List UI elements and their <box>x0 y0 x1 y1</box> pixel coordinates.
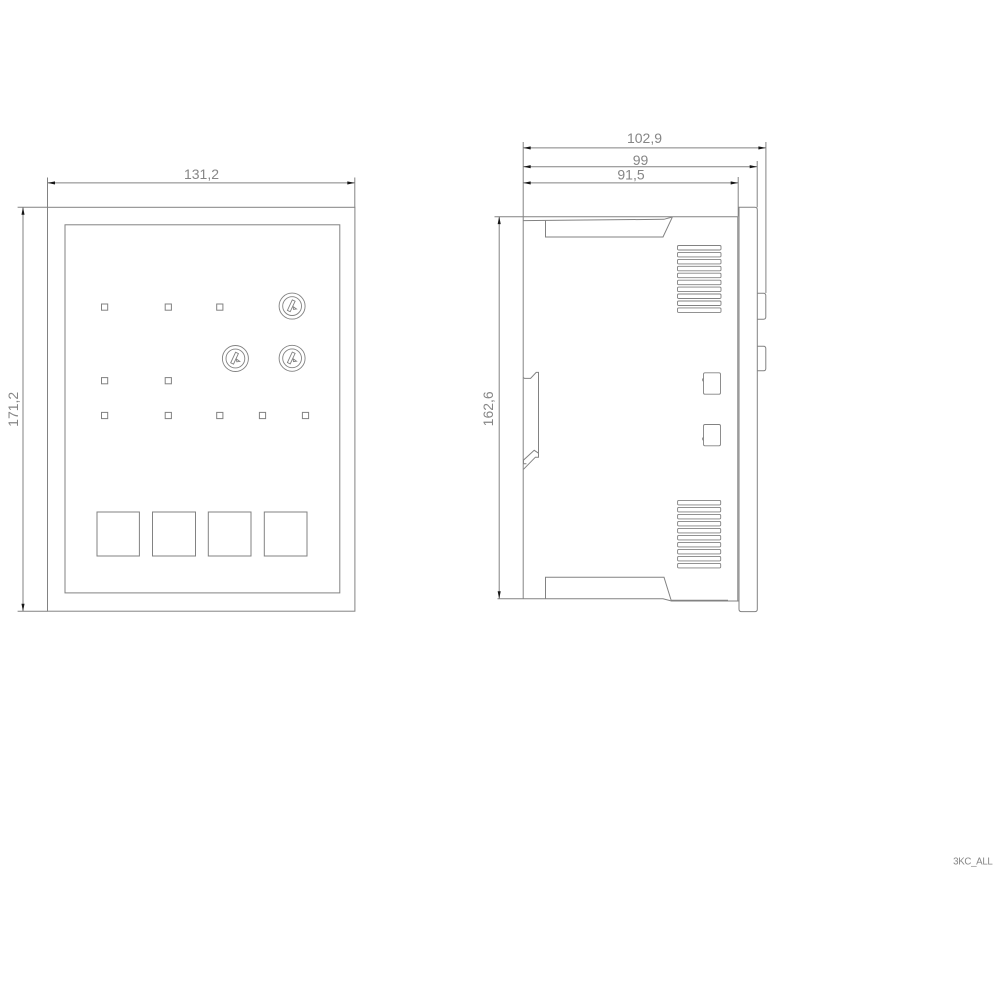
svg-text:3KC_ALL: 3KC_ALL <box>953 857 993 868</box>
svg-text:99: 99 <box>633 152 649 168</box>
svg-text:171,2: 171,2 <box>5 392 21 427</box>
svg-text:102,9: 102,9 <box>627 130 662 146</box>
svg-text:91,5: 91,5 <box>617 167 644 183</box>
svg-text:162,6: 162,6 <box>480 391 496 426</box>
svg-text:131,2: 131,2 <box>184 166 219 182</box>
